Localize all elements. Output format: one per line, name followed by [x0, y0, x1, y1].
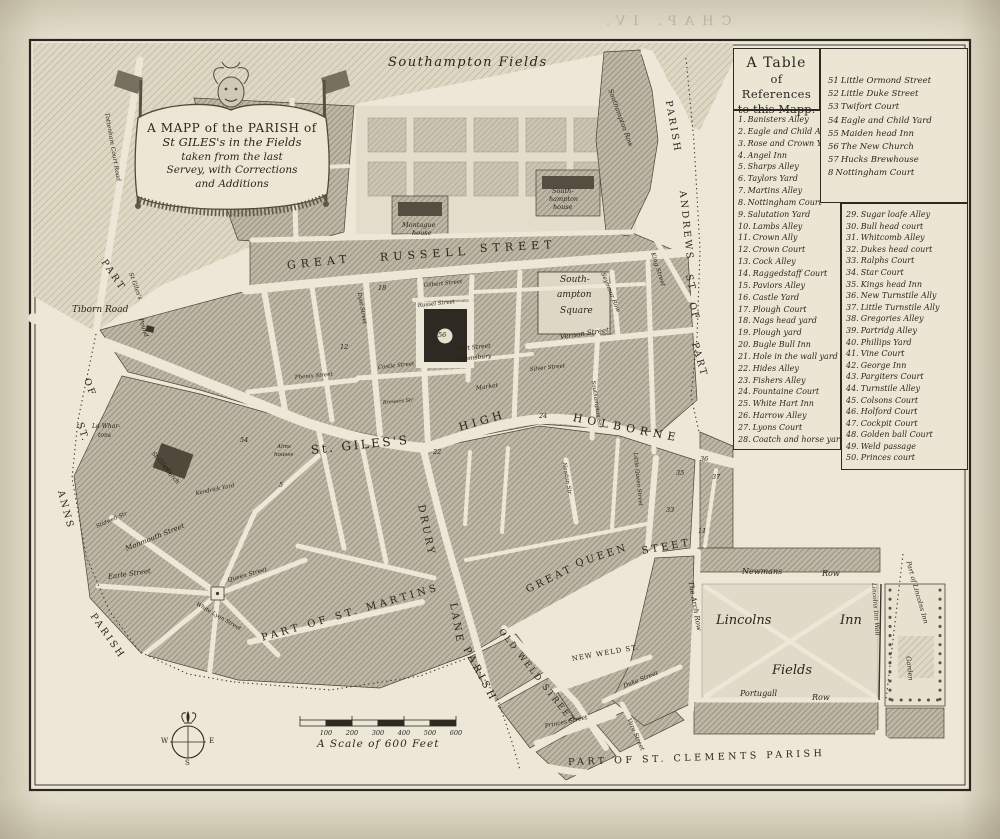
reference-entry: 45.Colsons Court	[842, 395, 967, 407]
reference-entry: 54Eagle and Child Yard	[821, 115, 967, 128]
reference-table-title: A Table of References to this Mapp.	[733, 48, 820, 110]
map-ref-number: 35	[676, 470, 684, 477]
reference-list-29-50: 29.Sugar loafe Alley30.Bull head court31…	[841, 203, 968, 470]
reference-entry: 13.Cock Alley	[734, 256, 840, 268]
map-label: Portugall	[740, 690, 777, 698]
seven-dials	[211, 587, 224, 600]
reference-entry: 22.Hides Alley	[734, 363, 840, 375]
table-title-line: of References	[734, 72, 819, 102]
map-label: Garden	[905, 656, 914, 681]
title-line: St GILES's in the Fields	[134, 137, 330, 149]
reference-entry: 25.White Hart Inn	[734, 398, 840, 410]
reference-entry: 17.Plough Court	[734, 304, 840, 316]
reference-entry: 52Little Duke Street	[821, 88, 967, 101]
reference-entry: 16.Castle Yard	[734, 292, 840, 304]
map-ref-number: 12	[340, 344, 348, 351]
reference-entry: 14.Raggedstaff Court	[734, 268, 840, 280]
map-label: Square	[560, 307, 593, 316]
reference-entry: 51Little Ormond Street	[821, 75, 967, 88]
map-label: hampton	[549, 196, 578, 203]
scale-caption: A Scale of 600 Feet	[317, 738, 439, 750]
map-label: Montague	[402, 222, 435, 229]
reference-entry: 43.Pargiters Court	[842, 371, 967, 383]
compass-east: E	[209, 737, 214, 745]
scale-tick: 100	[313, 729, 339, 737]
reference-entry: 46.Holford Court	[842, 406, 967, 418]
map-ref-number: 18	[378, 285, 386, 292]
reference-entry: 8Nottingham Court	[821, 167, 967, 180]
lincolns-inn-fields	[702, 584, 945, 706]
scale-tick: 600	[443, 729, 469, 737]
scale-tick: 400	[391, 729, 417, 737]
compass-south: S	[185, 759, 190, 767]
reference-entry: 21.Hole in the wall yard	[734, 351, 840, 363]
title-line: A MAPP of the PARISH of	[134, 122, 330, 134]
map-ref-number: 5	[279, 482, 283, 489]
reference-entry: 32.Dukes head court	[842, 244, 967, 256]
map-label: house	[553, 204, 572, 211]
map-ref-number: 36	[700, 456, 708, 463]
map-label: houses	[274, 453, 293, 459]
reference-entry: 47.Cockpit Court	[842, 418, 967, 430]
map-label: South-	[552, 188, 574, 195]
reference-entry: 23.Fishers Alley	[734, 375, 840, 387]
reference-entry: 12.Crown Court	[734, 244, 840, 256]
reference-entry: 18.Nags head yard	[734, 315, 840, 327]
map-label: Southampton Fields	[388, 56, 548, 69]
reference-entry: 28.Coatch and horse yard	[734, 434, 840, 446]
reference-entry: 40.Phillips Yard	[842, 337, 967, 349]
table-title-line: A Table	[734, 54, 819, 72]
map-label: Lincolns	[716, 614, 771, 627]
reference-entry: 11.Crown Ally	[734, 232, 840, 244]
map-ref-number: 22	[433, 449, 441, 456]
reference-entry: 37.Little Turnstile Ally	[842, 302, 967, 314]
reference-entry: 53Twifort Court	[821, 101, 967, 114]
map-label: Inn	[840, 614, 862, 627]
title-line: Servey, with Corrections	[134, 165, 330, 176]
reference-entry: 29.Sugar loafe Alley	[842, 209, 967, 221]
compass-west: W	[161, 737, 168, 745]
reference-list-51-57: 51Little Ormond Street52Little Duke Stre…	[820, 48, 968, 203]
map-label: ampton	[557, 291, 592, 300]
map-label: Row	[822, 570, 840, 578]
reference-entry: 30.Bull head court	[842, 221, 967, 233]
map-label: Fields	[772, 664, 812, 677]
reference-entry: 24.Fountaine Court	[734, 386, 840, 398]
map-label: Row	[812, 694, 830, 702]
map-ref-number: 24	[539, 413, 547, 420]
reference-entry: 33.Ralphs Court	[842, 255, 967, 267]
reference-entry: 38.Gregories Alley	[842, 313, 967, 325]
reference-entry: 15.Paviors Alley	[734, 280, 840, 292]
map-label: South-	[560, 276, 590, 285]
map-label: house	[412, 230, 431, 237]
reference-entry: 42.George Inn	[842, 360, 967, 372]
map-label: Tiborn Road	[72, 306, 128, 315]
reference-entry: 9.Salutation Yard	[734, 209, 840, 221]
map-ref-number: 54	[240, 437, 248, 444]
map-label: Newmans	[742, 568, 782, 576]
map-title: A MAPP of the PARISH of St GILES's in th…	[134, 122, 330, 192]
map-label: Ld Whar-	[92, 424, 120, 430]
reference-entry: 55Maiden head Inn	[821, 128, 967, 141]
reference-entry: 19.Plough yard	[734, 327, 840, 339]
reference-entry: 26.Harrow Alley	[734, 410, 840, 422]
map-ref-number: 37	[712, 474, 720, 481]
reference-entry: 34.Star Court	[842, 267, 967, 279]
map-label: Alms	[277, 445, 291, 451]
bleedthrough-text: CHAP. IV.	[598, 14, 731, 29]
title-line: taken from the last	[134, 152, 330, 163]
title-line: and Additions	[134, 179, 330, 190]
reference-entry: 48.Golden ball Court	[842, 429, 967, 441]
reference-entry: 44.Turnstile Alley	[842, 383, 967, 395]
reference-entry: 10.Lambs Alley	[734, 221, 840, 233]
scale-tick: 200	[339, 729, 365, 737]
reference-entry: 39.Partridg Alley	[842, 325, 967, 337]
scale-tick-labels: 100200300400500600	[300, 729, 456, 737]
reference-entry: 56The New Church	[821, 141, 967, 154]
reference-entry: 31.Whitcomb Alley	[842, 232, 967, 244]
map-label: tons	[98, 433, 111, 439]
reference-entry: 57Hucks Brewhouse	[821, 154, 967, 167]
reference-entry: 27.Lyons Court	[734, 422, 840, 434]
table-title-line: to this Mapp.	[734, 102, 819, 117]
reference-entry: 49.Weld passage	[842, 441, 967, 453]
reference-entry: 41.Vine Court	[842, 348, 967, 360]
map-ref-number: 33	[666, 507, 674, 514]
map-ref-number: 56	[438, 332, 446, 339]
reference-entry: 36.New Turnstile Ally	[842, 290, 967, 302]
scale-tick: 300	[365, 729, 391, 737]
reference-entry: 20.Bugle Bull Inn	[734, 339, 840, 351]
reference-entry: 50.Princes court	[842, 452, 967, 464]
antique-map-page: CHAP. IV. V2.B4.P75 A MAPP of the PARISH…	[0, 0, 1000, 839]
reference-entry: 35.Kings head Inn	[842, 279, 967, 291]
scale-tick: 500	[417, 729, 443, 737]
map-ref-number: 11	[698, 528, 706, 535]
